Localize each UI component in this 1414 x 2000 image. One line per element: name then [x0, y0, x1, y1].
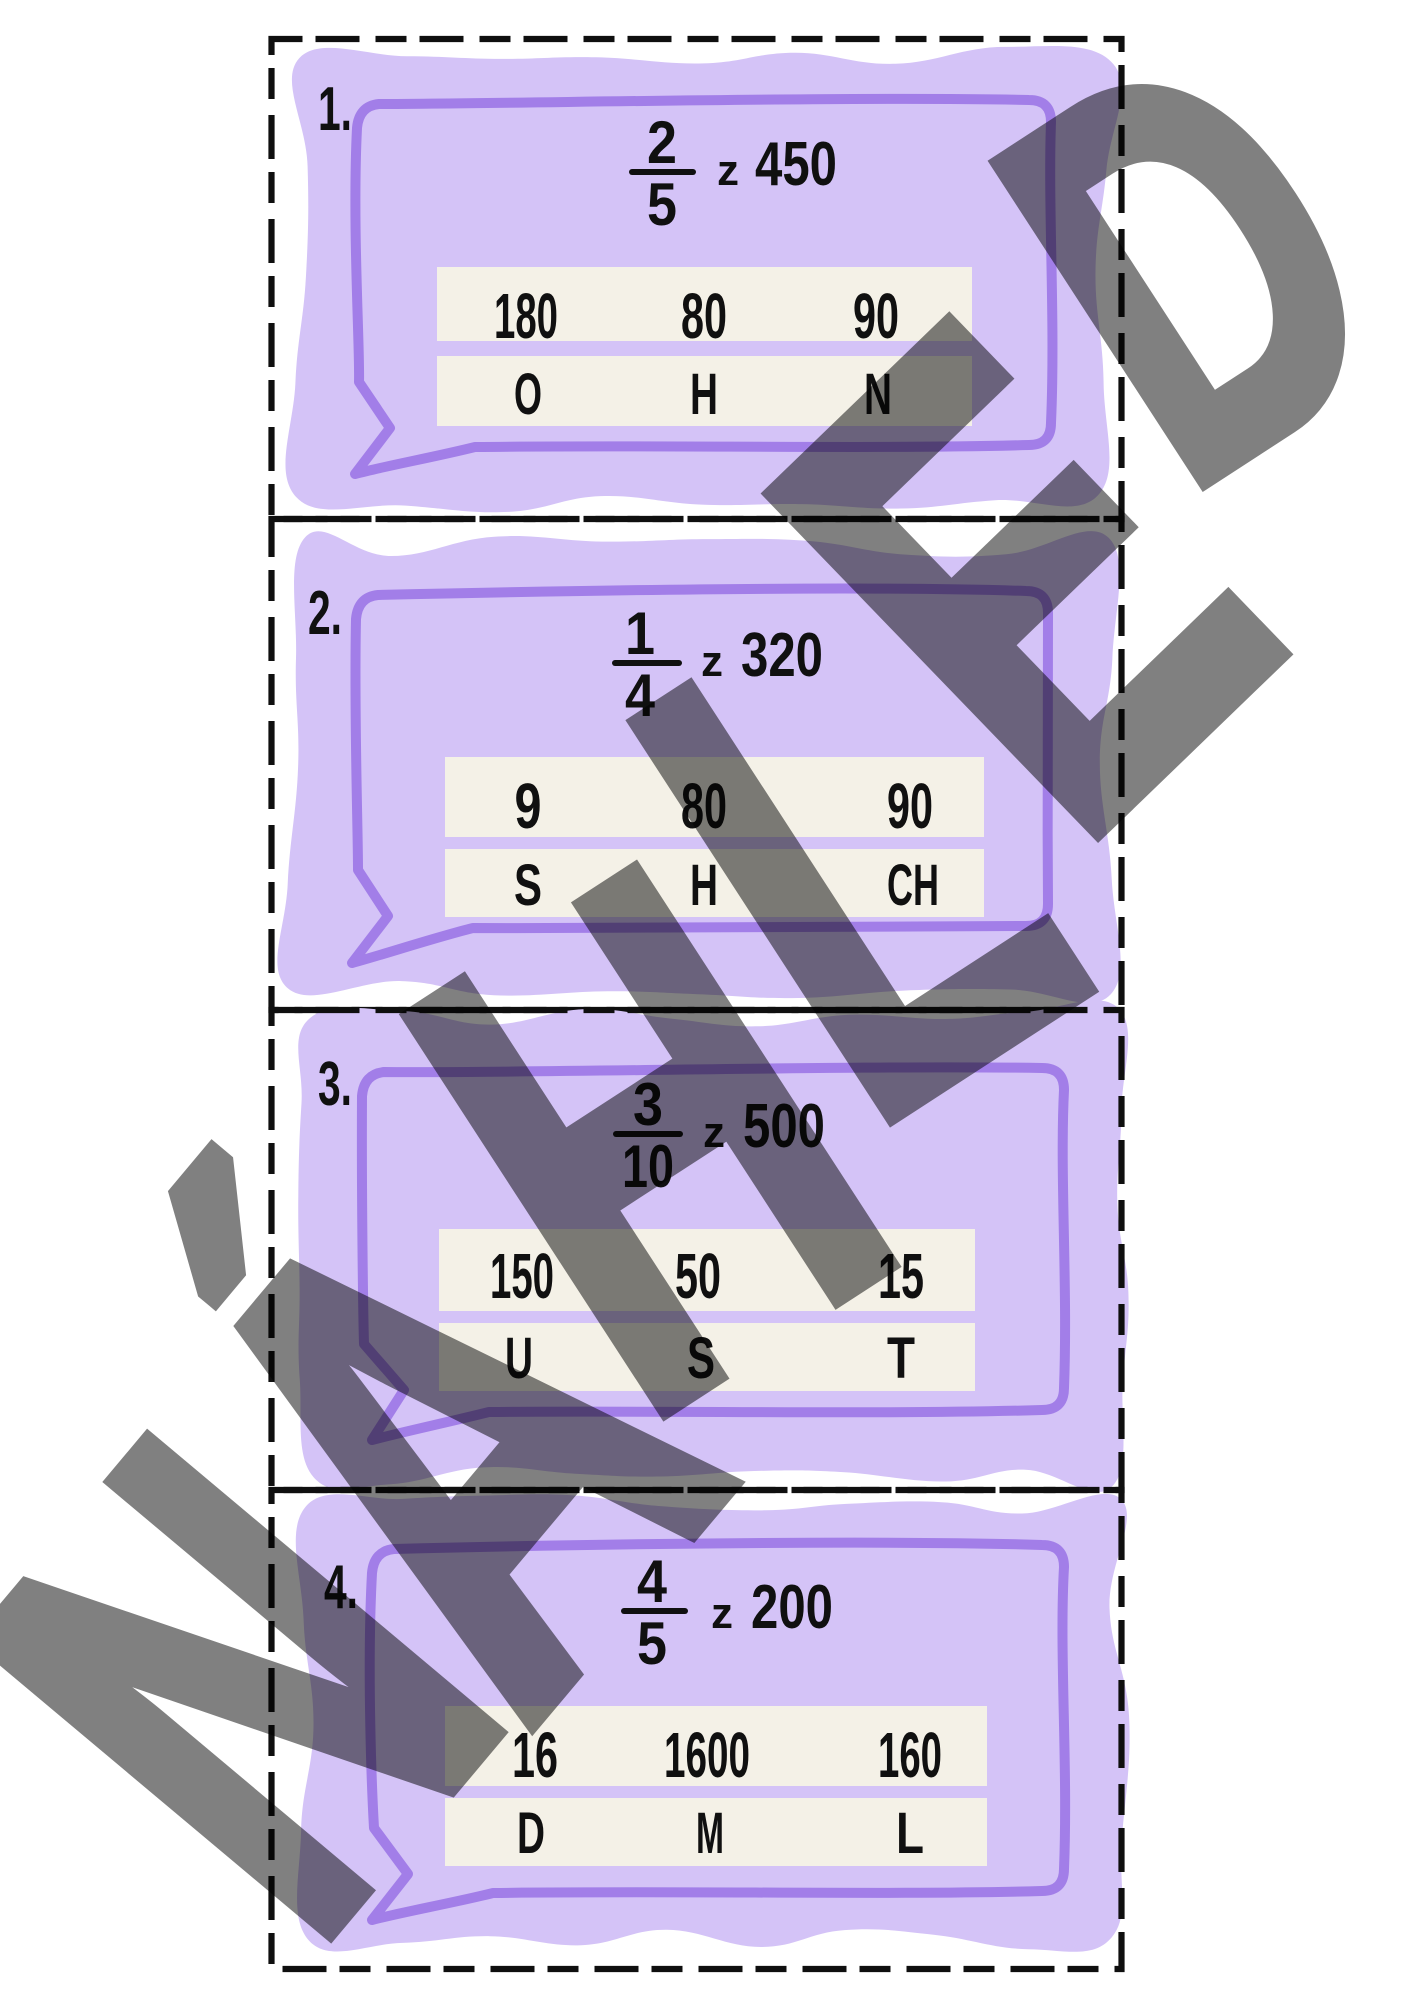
svg-text:2.: 2. [308, 579, 342, 648]
svg-text:O: O [514, 362, 542, 427]
svg-text:160: 160 [878, 1719, 942, 1791]
svg-text:3.: 3. [318, 1050, 352, 1119]
svg-text:5: 5 [647, 171, 677, 238]
svg-text:L: L [896, 1801, 924, 1866]
svg-text:z: z [717, 146, 739, 195]
svg-text:M: M [696, 1801, 724, 1866]
svg-text:180: 180 [494, 280, 558, 352]
svg-text:2: 2 [647, 109, 677, 176]
svg-text:450: 450 [755, 130, 837, 199]
svg-text:1.: 1. [318, 75, 352, 144]
